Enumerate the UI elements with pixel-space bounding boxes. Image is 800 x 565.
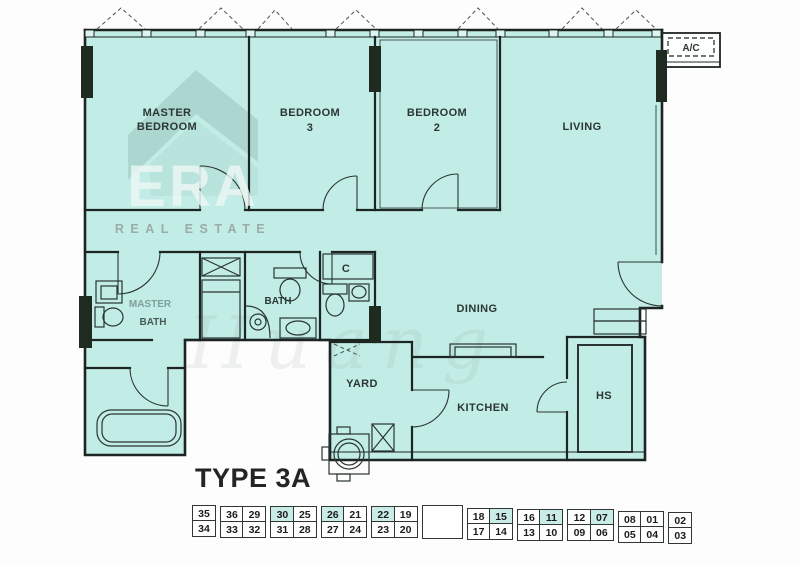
living-label: LIVING [562, 121, 601, 133]
floorplan-page: Huang A/C [0, 0, 800, 565]
unit-number-cell: 32 [242, 521, 266, 538]
unit-number-cell: 33 [220, 521, 244, 538]
unit-number-cell: 04 [640, 526, 664, 543]
dining-label: DINING [457, 303, 498, 315]
master-bedroom-label-line2: BEDROOM [137, 121, 197, 133]
unit-number-block: 30312528 [270, 506, 316, 538]
unit-number-cell: 17 [467, 523, 491, 540]
bedroom2-label-line2: 2 [434, 122, 441, 134]
unit-number-cell: 27 [321, 521, 345, 538]
lift-core-block [422, 505, 463, 539]
era-tagline-text: REAL ESTATE [115, 222, 271, 236]
master-bath-label-line1: MASTER [129, 299, 172, 310]
master-bath-label-line2: BATH [139, 317, 166, 328]
plan-type-title: TYPE 3A [195, 463, 311, 493]
yard-label: YARD [346, 378, 378, 390]
unit-number-block: 26272124 [321, 506, 367, 538]
unit-number-cell: 28 [293, 521, 317, 538]
bedroom3-label-line2: 3 [307, 122, 314, 134]
unit-number-block: 22231920 [371, 506, 417, 538]
household-shelter-label: HS [596, 390, 612, 402]
ac-ledge: A/C [662, 33, 720, 67]
unit-number-cell: 34 [192, 520, 216, 537]
unit-number-cell: 03 [668, 527, 692, 544]
floorplan-drawing: Huang A/C [0, 0, 800, 565]
kitchen-label: KITCHEN [457, 402, 509, 414]
unit-number-cell: 09 [567, 524, 591, 541]
closet-label: C [342, 263, 350, 275]
unit-number-block: 3534 [192, 505, 216, 537]
unit-number-block: 36332932 [220, 506, 266, 538]
unit-number-cell: 31 [270, 521, 294, 538]
bath-label: BATH [264, 296, 291, 307]
unit-number-cell: 05 [618, 526, 642, 543]
unit-grid: 3534363329323031252826272124222319201817… [192, 505, 692, 539]
unit-number-cell: 24 [343, 521, 367, 538]
unit-number-cell: 10 [539, 524, 563, 541]
ac-label: A/C [682, 43, 699, 54]
unit-number-block: 18171514 [467, 508, 513, 540]
unit-number-block: 12090706 [567, 509, 613, 541]
bedroom2-label-line1: BEDROOM [407, 107, 467, 119]
unit-number-cell: 14 [489, 523, 513, 540]
unit-number-block: 16131110 [517, 509, 563, 541]
unit-number-block: 0203 [668, 512, 692, 544]
unit-number-cell: 20 [394, 521, 418, 538]
unit-number-cell: 13 [517, 524, 541, 541]
unit-number-block: 08050104 [618, 511, 664, 543]
era-logo-text: ERA [127, 154, 258, 219]
bedroom3-label-line1: BEDROOM [280, 107, 340, 119]
master-bedroom-label-line1: MASTER [143, 107, 192, 119]
window-swing-marks [97, 8, 656, 29]
unit-number-cell: 06 [590, 524, 614, 541]
unit-number-cell: 23 [371, 521, 395, 538]
